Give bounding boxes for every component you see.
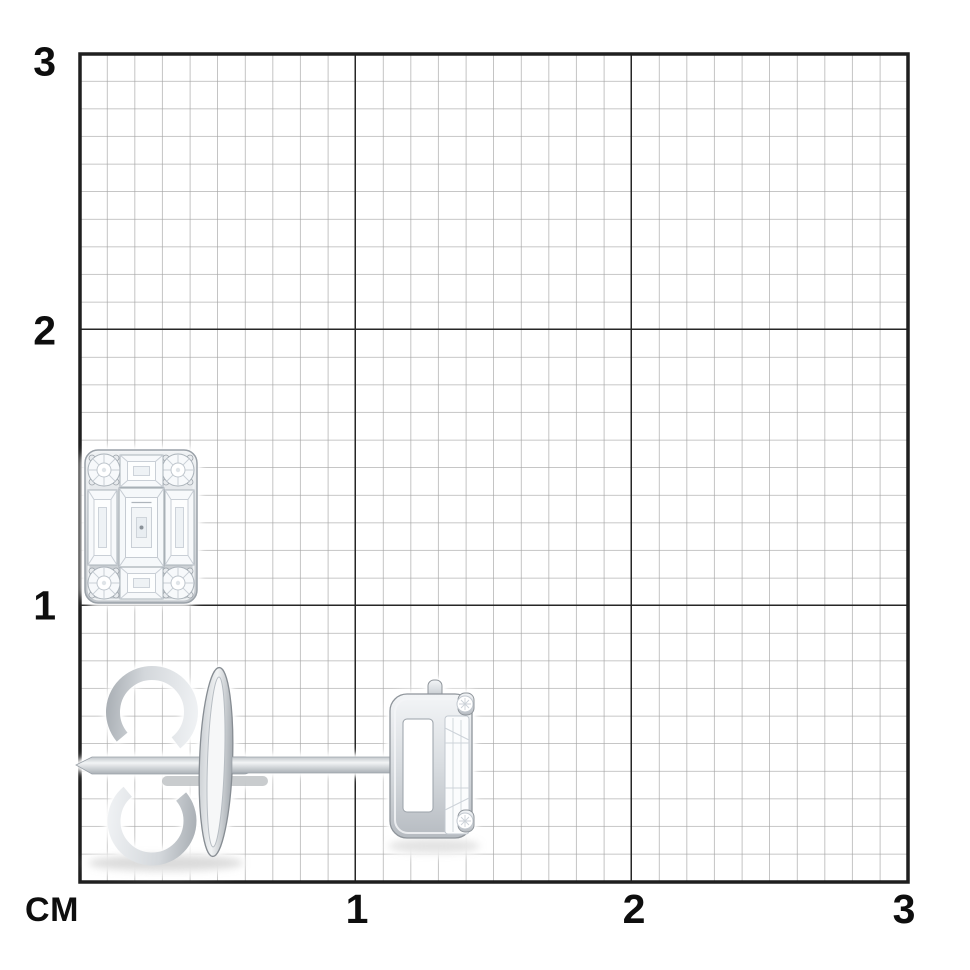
unit-label-cm: СМ <box>25 893 79 927</box>
basket-window <box>403 719 433 812</box>
x-axis-label-2: 2 <box>604 889 664 930</box>
butterfly-top-loop <box>97 657 207 767</box>
y-axis-label-3: 3 <box>10 42 56 83</box>
x-axis-label-3: 3 <box>874 889 934 930</box>
earring-front-view <box>70 438 212 616</box>
measurement-photo-canvas: 3 2 1 СМ 1 2 3 <box>0 0 970 970</box>
stud-basket <box>390 680 474 838</box>
top-prong-with-diamond <box>457 693 474 715</box>
center-emerald-diamond <box>119 488 164 567</box>
x-axis-label-1: 1 <box>327 889 387 930</box>
bottom-prong-with-diamond <box>457 810 474 832</box>
y-axis-label-1: 1 <box>10 586 56 627</box>
y-axis-label-2: 2 <box>10 311 56 352</box>
earring-side-view <box>62 648 487 880</box>
ear-post <box>232 757 394 773</box>
